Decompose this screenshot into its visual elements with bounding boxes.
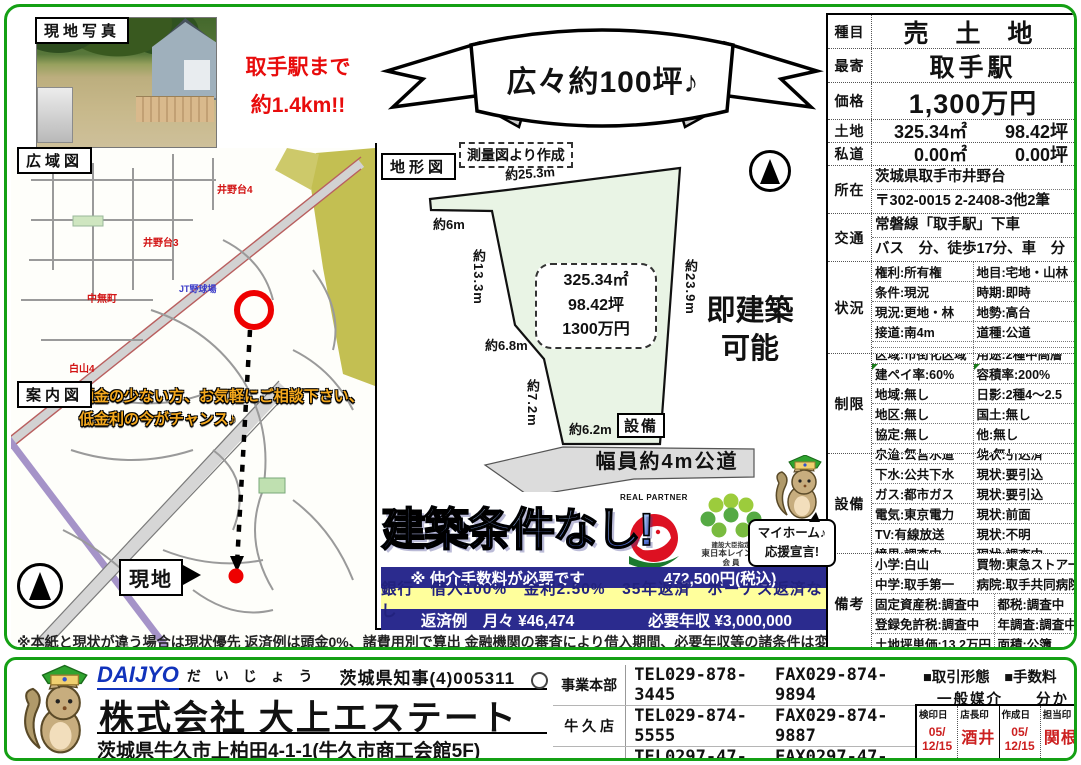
property-info-table: 種目 売 土 地 最寄 取手駅 価格 1,300万円 土地 325.34㎡98.… — [826, 13, 1076, 649]
photo-fence — [136, 96, 214, 122]
banner-headline: 広々約100坪♪ — [443, 57, 763, 101]
stamp-check-date: 検印日 05/12/15 — [917, 706, 957, 758]
company-mascot — [15, 664, 95, 758]
photo-house-wall — [184, 60, 210, 90]
plot-area-box: 325.34㎡98.42坪1300万円 — [535, 263, 657, 349]
map-place-label: 井野台4 — [217, 181, 253, 196]
row-price: 価格 1,300万円 — [828, 83, 1074, 120]
stamp-agent: 担当印 関根 — [1040, 706, 1077, 758]
dim-mid: 約6.8m — [485, 335, 528, 354]
disclaimer-text: ※本紙と現状が違う場合は現状優先 返済例は頭金0%、諸費用別で算出 金融機関の審… — [17, 632, 822, 650]
photo-label: 現地写真 — [35, 17, 129, 44]
wide-map-label: 広域図 — [17, 147, 92, 174]
logo-row: DAIJYO だ い じ ょ う 茨城県知事(4)005311 — [97, 664, 547, 690]
row-location: 所在 茨城県取手市井野台〒302-0015 2-2408-3他2筆 — [828, 166, 1074, 214]
stamp-table: 検印日 05/12/15 店長印 酒井 作成日 05/12/15 担当印 関根 — [915, 704, 1077, 760]
row-transport: 交通 常磐線「取手駅」下車バス 分、徒歩17分、車 分 — [828, 214, 1074, 262]
plot-compass-icon — [749, 150, 791, 192]
map-place-label: 白山4 — [69, 360, 95, 375]
dim-bottom: 約6.2m — [569, 419, 612, 438]
myhome-bubble: マイホーム♪応援宣言! — [748, 519, 836, 567]
row-restrictions: 制限 区域:市街化区域用途:2種中高層 建ペイ率:60%容積率:200% 地域:… — [828, 354, 1074, 454]
row-land-area: 土地 325.34㎡98.42坪 — [828, 120, 1074, 143]
daijyo-kana: だ い じ ょ う — [187, 666, 318, 686]
office-phone-table: 事業本部 TEL029-878-3445 FAX029-874-9894 牛 久… — [553, 665, 919, 758]
row-utilities: 設備 水道:公営水道現状:引込済 下水:公共下水現状:要引込 ガス:都市ガス現状… — [828, 454, 1074, 554]
map-poi-label: JT野球場 — [179, 282, 217, 295]
daijyo-logo: DAIJYO — [97, 662, 179, 690]
site-arrow-icon — [183, 565, 201, 585]
survey-note: 測量図より作成 — [459, 142, 573, 168]
dim-low: 約7.2m — [523, 379, 542, 427]
photo-wall — [37, 87, 73, 143]
dim-spike: 約6m — [433, 214, 465, 233]
office-row: 事業本部 TEL029-878-3445 FAX029-874-9894 — [553, 665, 919, 706]
road-width-text: 幅員約4m公道 — [562, 445, 772, 474]
map-site-dot — [229, 569, 244, 584]
guide-map-label: 案内図 — [17, 381, 92, 408]
row-station: 最寄 取手駅 — [828, 49, 1074, 83]
finance-table: ※ 仲介手数料が必要です 472,500円(税込) 銀行 借入100% 金利2.… — [381, 567, 826, 630]
immediate-build-text: 即建築可能 — [695, 293, 805, 368]
row-remarks: 備考 小学:白山買物:東急ストアー 中学:取手第一病院:取手共同病院 固定資産税… — [828, 554, 1074, 650]
loan-promo-text: 頭金の少ない方、お気軽にご相談下さい、低金利の今がチャンス♪ — [79, 385, 379, 432]
stamp-manager: 店長印 酒井 — [957, 706, 998, 758]
finance-row-loan: 銀行 借入100% 金利2.50% 35年返済 ボーナス返済なし — [381, 588, 826, 609]
row-type: 種目 売 土 地 — [828, 15, 1074, 49]
plot-map-label: 地形図 — [381, 153, 456, 180]
equipment-tag: 設備 — [617, 413, 665, 438]
company-address: 茨城県牛久市上柏田4-1-1(牛久市商工会館5F) — [97, 732, 547, 761]
station-distance-text: 取手駅まで約1.4km!! — [220, 49, 376, 125]
row-status: 状況 権利:所有権地目:宅地・山林 条件:現況時期:即時 現況:更地・林地勢:高… — [828, 262, 1074, 354]
map-place-label: 中無町 — [87, 290, 117, 305]
finance-row-repayment: 返済例 月々 ¥46,474 必要年収 ¥3,000,000 — [381, 609, 826, 630]
flyer-main: 現地写真 取手駅まで約1.4km!! — [4, 4, 1077, 650]
no-building-condition-headline: 建築条件なし! — [381, 493, 652, 558]
office-row: 守 谷 店 TEL0297-47-8858 FAX0297-47-8859 — [553, 747, 919, 761]
dim-left: 約13.3m — [469, 249, 488, 305]
office-row: 牛 久 店 TEL029-874-5555 FAX029-874-9887 — [553, 706, 919, 747]
license-number: 茨城県知事(4)005311 — [339, 664, 515, 689]
stamp-created-date: 作成日 05/12/15 — [999, 706, 1040, 758]
row-private-road: 私道 0.00㎡0.00坪 — [828, 143, 1074, 166]
map-place-label: 井野台3 — [143, 234, 179, 249]
site-location-tag: 現地 — [119, 559, 183, 596]
compass-icon — [17, 563, 63, 609]
company-footer: DAIJYO だ い じ ょ う 茨城県知事(4)005311 株式会社 大上エ… — [4, 657, 1077, 761]
head-office-circle-mark — [531, 672, 548, 689]
